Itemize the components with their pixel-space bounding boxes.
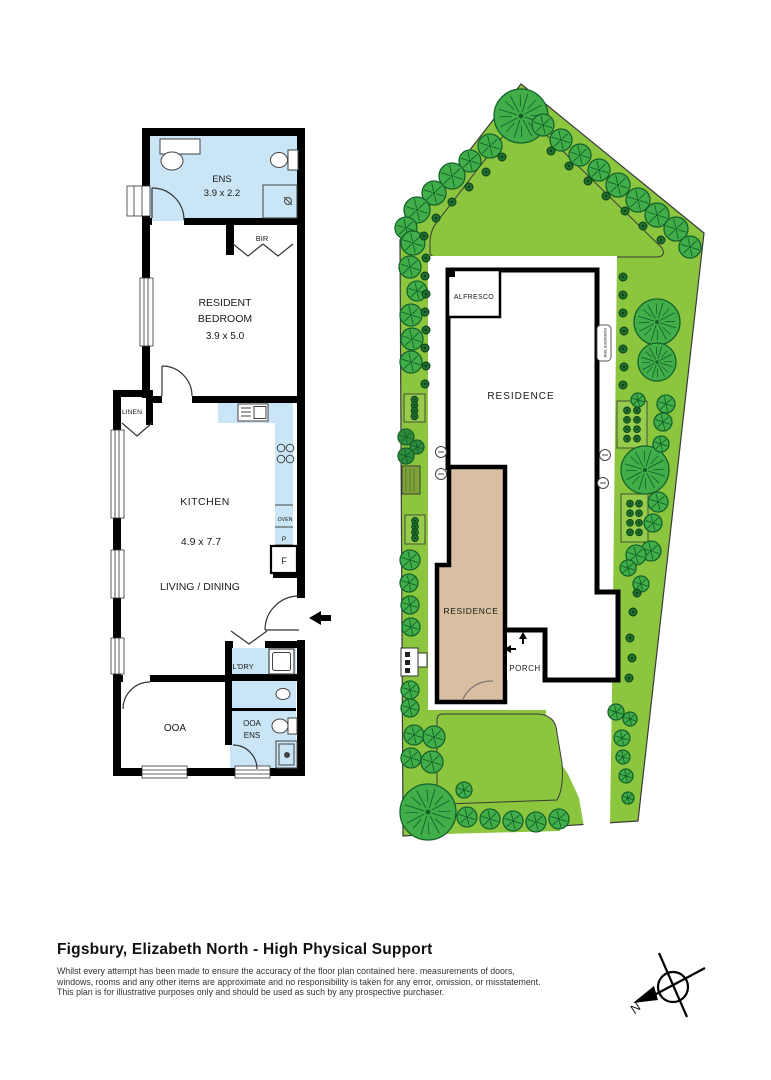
floorplan-sheet: ENS 3.9 x 2.2 BIR RESIDENT BEDROOM 3.9 x… — [0, 0, 771, 1080]
tree-icon — [532, 114, 554, 136]
plans-canvas: ENS 3.9 x 2.2 BIR RESIDENT BEDROOM 3.9 x… — [0, 0, 771, 1080]
rainwater-tank-label: RAINWATER TANK — [603, 328, 607, 358]
shrub-icon — [421, 308, 429, 316]
shrub-icon — [629, 608, 637, 616]
tree-icon — [421, 751, 443, 773]
tree-icon — [634, 299, 680, 345]
alfresco-label: ALFRESCO — [454, 294, 494, 301]
tree-icon — [401, 699, 419, 717]
planter-box — [405, 515, 425, 544]
shrub-icon — [422, 362, 430, 370]
shrub-icon — [657, 236, 665, 244]
tree-icon — [401, 596, 419, 614]
bedroom-dims: 3.9 x 5.0 — [206, 331, 245, 342]
tree-icon — [569, 144, 591, 166]
fridge-label: F — [281, 556, 287, 566]
shrub-icon — [448, 198, 456, 206]
ooa-ens-drain-icon — [285, 753, 290, 758]
shrub-icon — [625, 674, 633, 682]
tree-icon — [457, 807, 477, 827]
ooa-ens-label-1: OOA — [243, 719, 261, 728]
ens-toilet-tank — [288, 150, 298, 170]
tree-icon — [400, 784, 456, 840]
kitchen-bench-side — [275, 423, 293, 547]
tree-icon — [679, 236, 701, 258]
shrub-icon — [421, 380, 429, 388]
tree-icon — [400, 304, 422, 326]
tree-icon — [619, 769, 633, 783]
linen-label: LINEN — [122, 409, 142, 416]
shrub-icon — [482, 168, 490, 176]
pantry-label: P — [282, 536, 286, 543]
living-dining-label: LIVING / DINING — [160, 581, 240, 593]
tree-icon — [401, 328, 423, 350]
page-title: Figsbury, Elizabeth North - High Physica… — [57, 941, 657, 959]
residence-second-label: RESIDENCE — [444, 606, 499, 616]
bedroom-label-2: BEDROOM — [198, 313, 252, 325]
ooa-ens-toilet-icon — [272, 719, 288, 733]
tree-icon — [657, 395, 675, 413]
tree-icon — [616, 750, 630, 764]
entry-arrow-icon — [309, 611, 331, 625]
floor-plan: ENS 3.9 x 2.2 BIR RESIDENT BEDROOM 3.9 x… — [111, 128, 331, 778]
shrub-icon — [422, 290, 430, 298]
oven-label: OVEN — [278, 517, 293, 523]
tree-icon — [456, 782, 472, 798]
porch-label: PORCH — [509, 664, 540, 673]
tree-icon — [620, 560, 636, 576]
alfresco-post — [448, 270, 455, 277]
tree-icon — [631, 393, 645, 407]
planter-box — [404, 394, 425, 422]
shrub-icon — [432, 214, 440, 222]
tree-icon — [608, 704, 624, 720]
laundry-label: L'DRY — [232, 662, 253, 671]
tree-icon — [401, 681, 419, 699]
tree-icon — [653, 436, 669, 452]
tree-icon — [622, 792, 634, 804]
tree-icon — [648, 492, 668, 512]
tree-icon — [400, 550, 420, 570]
tree-icon — [549, 809, 569, 829]
shrub-icon — [620, 363, 628, 371]
shrub-icon — [421, 272, 429, 280]
shrub-icon — [547, 147, 555, 155]
bir-bifold-doors — [233, 244, 293, 256]
tree-icon — [614, 730, 630, 746]
disclaimer-line: Whilst every attempt has been made to en… — [57, 966, 657, 977]
tree-icon — [526, 812, 546, 832]
shrub-icon — [421, 344, 429, 352]
disclaimer-line: This plan is for illustrative purposes o… — [57, 987, 657, 998]
tree-icon — [623, 712, 637, 726]
shrub-icon — [422, 254, 430, 262]
meter-box-icon — [418, 653, 427, 667]
planter-box — [617, 401, 647, 448]
shrub-icon — [619, 345, 627, 353]
tree-icon — [399, 256, 421, 278]
tree-icon — [588, 159, 610, 181]
shrub-icon — [498, 153, 506, 161]
ens-dims: 3.9 x 2.2 — [204, 188, 240, 199]
tree-icon — [401, 748, 421, 768]
ooa-ens-basin-icon — [276, 689, 290, 700]
ens-toilet-icon — [271, 153, 288, 168]
tree-icon — [644, 514, 662, 532]
rainwater-tank: RAINWATER TANK — [597, 325, 611, 361]
shrub-icon — [619, 291, 627, 299]
bedroom-label-1: RESIDENT — [198, 297, 252, 309]
ens-basin-icon — [161, 152, 183, 170]
shrub-icon — [633, 589, 641, 597]
tree-icon — [621, 446, 669, 494]
ens-label: ENS — [212, 174, 232, 185]
shrub-icon — [602, 192, 610, 200]
tree-icon — [402, 618, 420, 636]
tree-icon — [503, 811, 523, 831]
residence-main-label: RESIDENCE — [487, 391, 554, 402]
shrub-icon — [628, 654, 636, 662]
planter-box — [621, 494, 648, 542]
shrub-icon — [639, 222, 647, 230]
ooa-ens-toilet-tank — [288, 718, 297, 734]
bir-label: BIR — [256, 234, 269, 243]
shrub-icon — [619, 273, 627, 281]
laundry-bifold-door — [231, 631, 267, 644]
shrub-icon — [584, 177, 592, 185]
shrub-icon — [620, 327, 628, 335]
tree-icon — [400, 351, 422, 373]
raised-garden-bed — [402, 466, 420, 494]
ooa-label: OOA — [164, 723, 187, 734]
site-plan: RAINWATER TANK ALFRESCO — [395, 84, 704, 840]
shrub-icon — [621, 207, 629, 215]
tree-icon — [638, 343, 676, 381]
tree-icon — [400, 574, 418, 592]
shrub-icon — [619, 309, 627, 317]
tree-icon — [423, 726, 445, 748]
shrub-icon — [420, 232, 428, 240]
kitchen-dims: 4.9 x 7.7 — [181, 536, 221, 548]
disclaimer: Whilst every attempt has been made to en… — [57, 966, 657, 998]
shrub-icon — [565, 162, 573, 170]
tree-icon — [404, 725, 424, 745]
shrub-icon — [465, 183, 473, 191]
kitchen-sink-bowl — [254, 407, 266, 419]
ooa-ens-label-2: ENS — [244, 731, 260, 740]
residence-second-footprint — [437, 467, 505, 702]
shrub-icon — [422, 326, 430, 334]
shrub-icon — [619, 381, 627, 389]
ens-vanity — [160, 139, 200, 154]
disclaimer-line: windows, rooms and any other items are a… — [57, 977, 657, 988]
tree-icon — [654, 413, 672, 431]
shrub-icon — [626, 634, 634, 642]
tree-icon — [398, 448, 414, 464]
tree-icon — [480, 809, 500, 829]
kitchen-label: KITCHEN — [180, 496, 230, 508]
title-block: Figsbury, Elizabeth North - High Physica… — [57, 941, 657, 998]
